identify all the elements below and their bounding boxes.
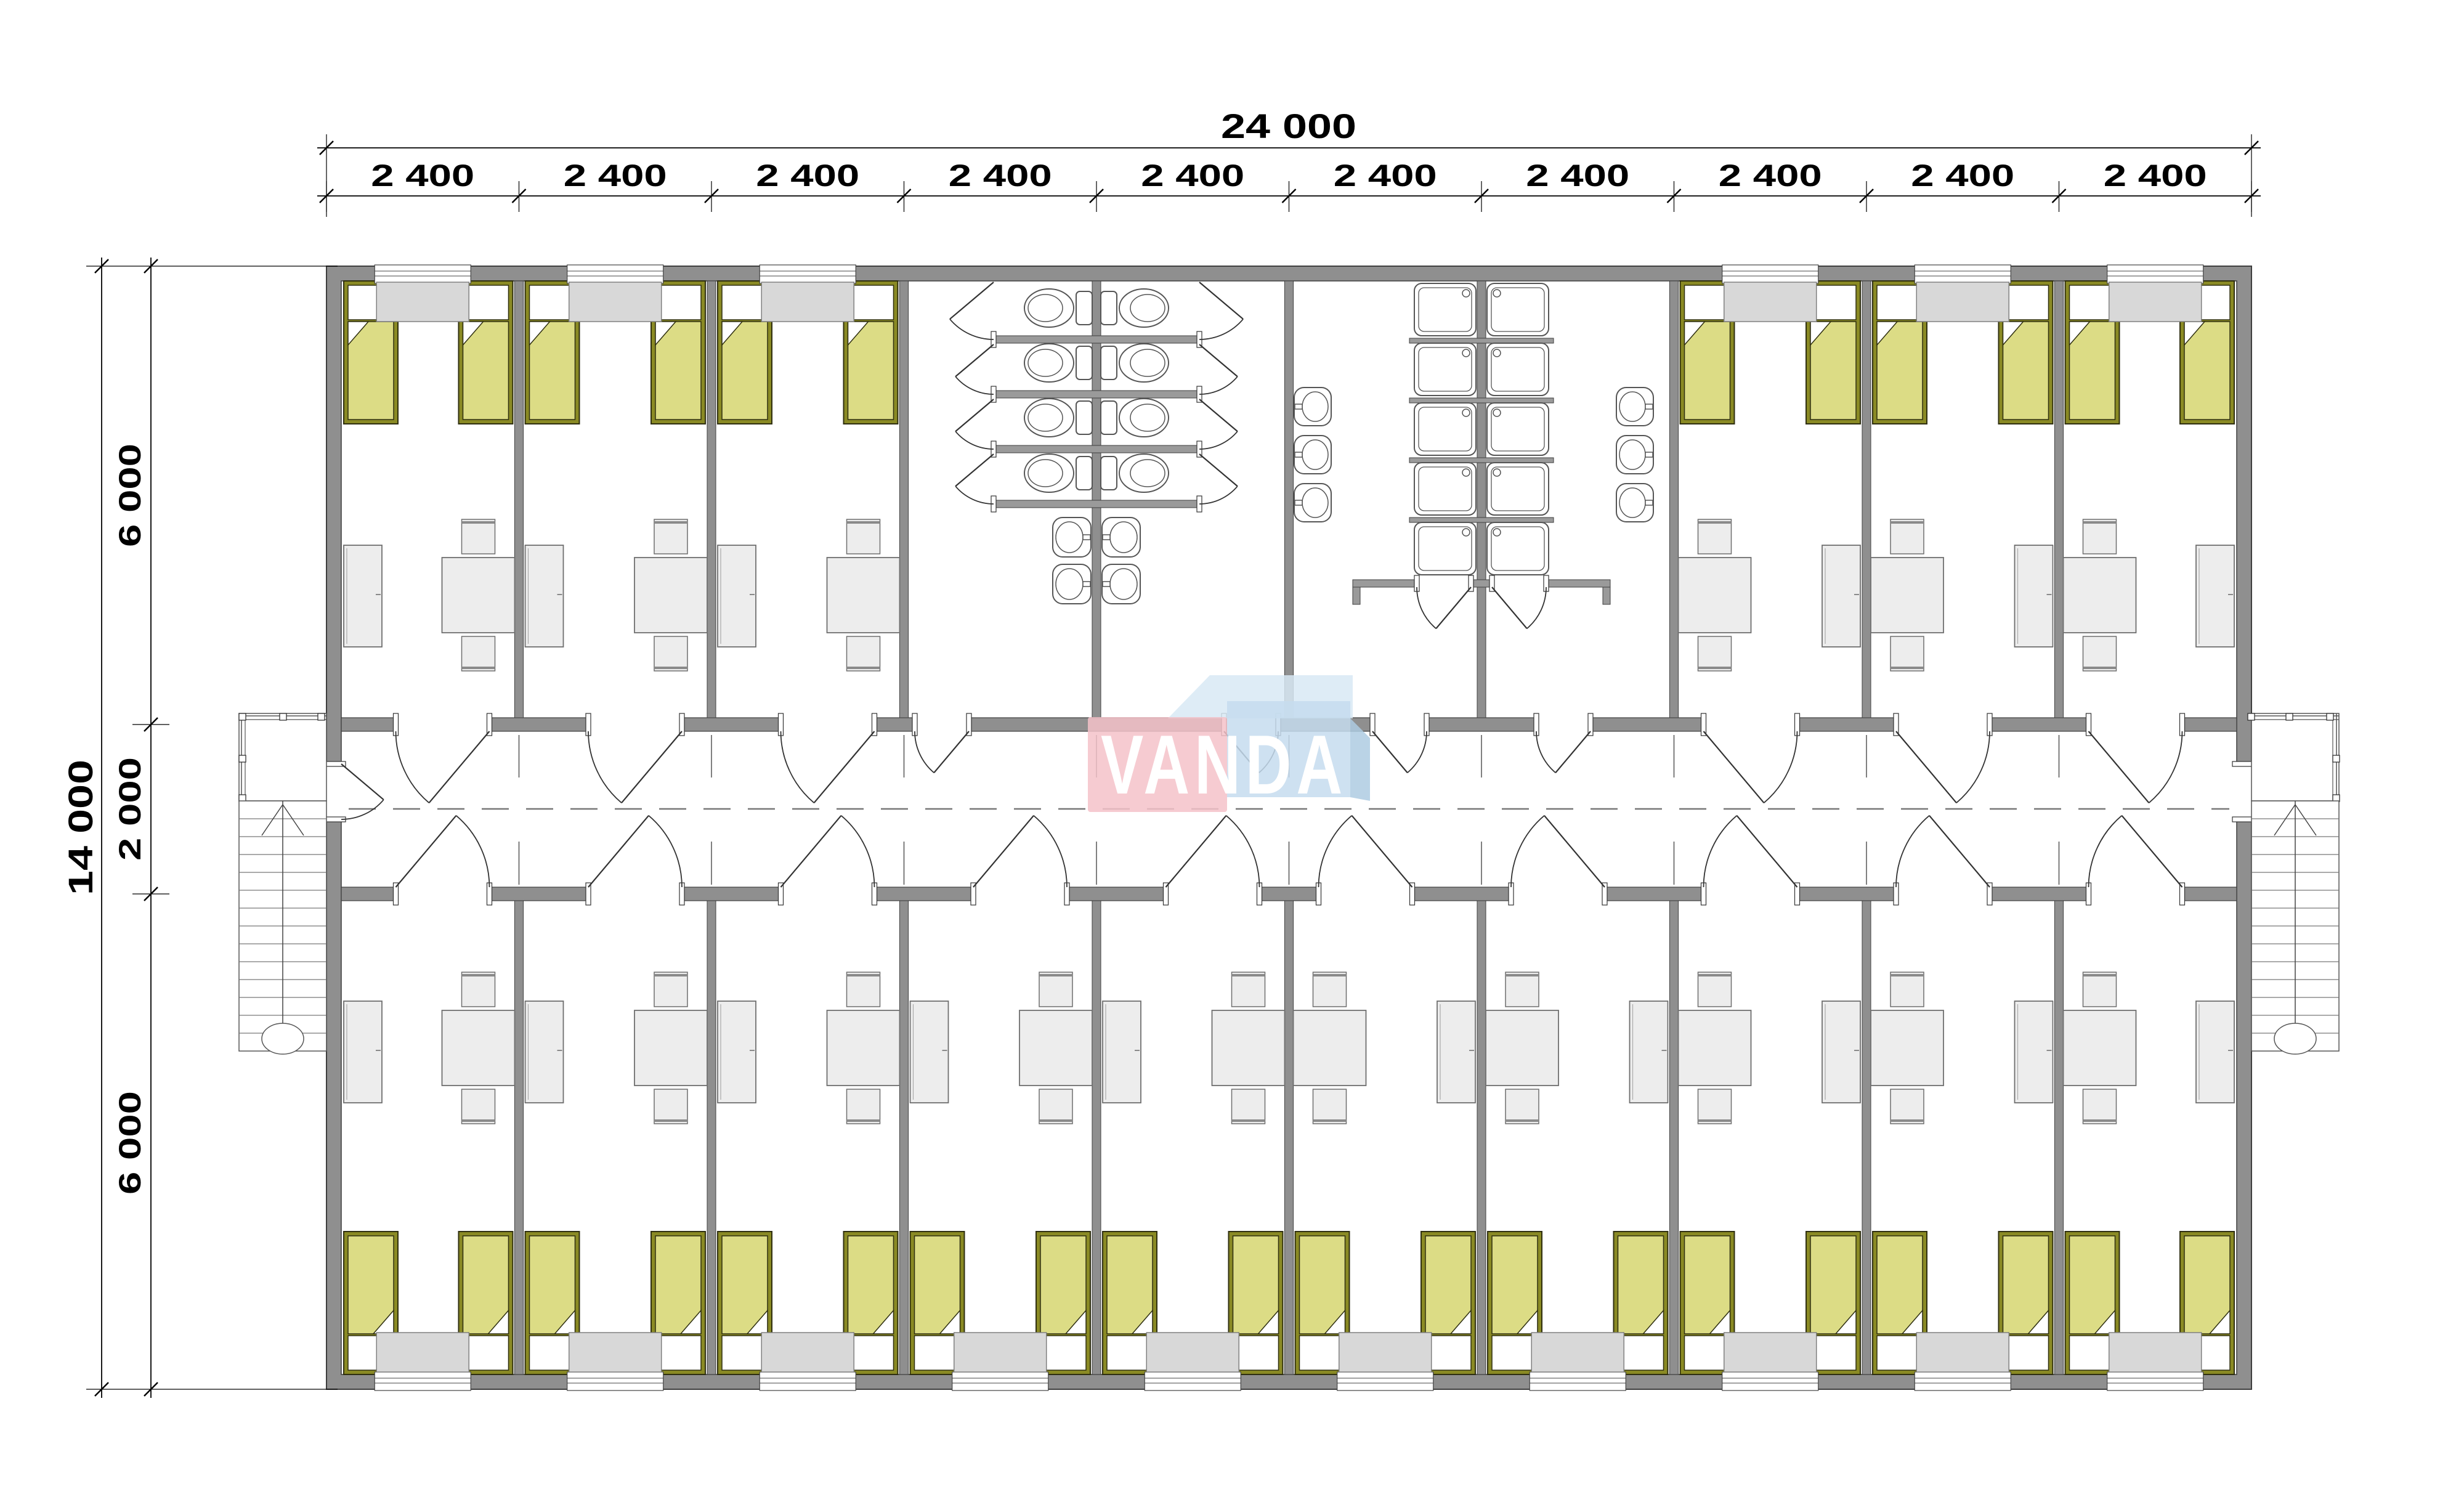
partition-wall-bottom	[1285, 901, 1294, 1374]
wardrobe	[1103, 1001, 1141, 1103]
stair-landing	[239, 713, 326, 801]
window-cabinet	[761, 1333, 854, 1372]
dining-table	[1294, 1010, 1366, 1086]
bed-pillow	[1685, 285, 1730, 320]
railing-post	[318, 713, 325, 720]
chair	[1039, 972, 1072, 1007]
window-cabinet	[954, 1333, 1047, 1372]
window-cabinet	[569, 1333, 662, 1372]
chair	[1232, 972, 1265, 1007]
bed-pillow	[463, 1336, 509, 1370]
bed-pillow	[463, 285, 509, 320]
window-cabinet	[569, 282, 662, 322]
chair	[2083, 972, 2117, 1007]
toilet-tank-icon	[1101, 457, 1117, 490]
window	[1915, 1372, 2011, 1390]
bed-pillow	[2070, 285, 2115, 320]
bed-pillow	[1040, 1336, 1086, 1370]
partition-wall-top	[1092, 281, 1101, 718]
wardrobe	[2015, 545, 2053, 647]
shower-drain	[1462, 409, 1470, 416]
chair	[847, 519, 880, 554]
shower-drain	[1493, 469, 1501, 476]
partition-wall-top	[1477, 281, 1486, 718]
chair	[1232, 1089, 1265, 1124]
door-opening	[781, 716, 875, 733]
bed-pillow	[848, 285, 894, 320]
dimension-label-module: 2 400	[949, 158, 1052, 193]
chair	[1698, 1089, 1732, 1124]
dimension-label-module: 2 400	[371, 158, 474, 193]
partition-wall-bottom	[707, 901, 716, 1374]
bed-pillow	[1233, 1336, 1279, 1370]
dining-table	[1212, 1010, 1285, 1086]
door-opening	[973, 886, 1067, 902]
window	[1722, 265, 1818, 283]
wc-stall-divider	[994, 336, 1199, 343]
chair	[654, 1089, 687, 1124]
chair	[1891, 636, 1924, 671]
bed-pillow	[530, 1336, 575, 1370]
chair	[1313, 972, 1347, 1007]
shower-drain	[1493, 529, 1501, 536]
door-opening	[1536, 716, 1591, 733]
door-opening	[1166, 886, 1260, 902]
bed-pillow	[1425, 1336, 1471, 1370]
shower-drain	[1493, 349, 1501, 357]
door-opening	[2235, 764, 2253, 819]
chair	[462, 519, 495, 554]
window-cabinet	[1531, 1333, 1624, 1372]
chair	[654, 972, 687, 1007]
wardrobe	[525, 545, 564, 647]
sink-tap	[1295, 500, 1302, 505]
toilet-tank-icon	[1101, 346, 1117, 380]
bed-pillow	[655, 285, 701, 320]
window	[1337, 1372, 1433, 1390]
door-opening	[1704, 886, 1797, 902]
shower-drain	[1493, 290, 1501, 297]
dining-table	[2064, 1010, 2136, 1086]
window	[1530, 1372, 1626, 1390]
dimension-label-lower-depth: 6 000	[113, 1091, 147, 1195]
shower-wall-stub	[1603, 587, 1610, 604]
shower-wall-stub	[1353, 587, 1360, 604]
bed-pillow	[1492, 1336, 1538, 1370]
shower-divider	[1409, 398, 1554, 403]
bed-pillow	[1810, 285, 1856, 320]
dimension-label-module: 2 400	[756, 158, 859, 193]
shower-drain	[1462, 529, 1470, 536]
door-opening	[396, 716, 490, 733]
chair	[2083, 1089, 2117, 1124]
window-cabinet	[376, 1333, 469, 1372]
window-cabinet	[1146, 1333, 1239, 1372]
toilet-tank-icon	[1076, 401, 1092, 434]
shower-drain	[1462, 349, 1470, 357]
partition-wall-bottom	[1862, 901, 1871, 1374]
wc-stall-divider	[994, 391, 1199, 398]
door-opening	[781, 886, 875, 902]
wardrobe	[344, 545, 382, 647]
partition-wall-bottom	[1670, 901, 1679, 1374]
bed-pillow	[1107, 1336, 1153, 1370]
shower-divider	[1409, 458, 1554, 463]
bed-pillow	[1685, 1336, 1730, 1370]
dining-table	[442, 558, 515, 633]
chair	[654, 519, 687, 554]
door-opening	[1896, 886, 1990, 902]
window-cabinet	[1724, 282, 1817, 322]
door-opening	[396, 886, 490, 902]
dining-table	[2064, 558, 2136, 633]
window	[567, 265, 663, 283]
dimension-label-module: 2 400	[1526, 158, 1629, 193]
bed-pillow	[915, 1336, 960, 1370]
door-opening	[588, 716, 682, 733]
bed-pillow	[1300, 1336, 1345, 1370]
railing-post	[2286, 713, 2293, 720]
sink-tap	[1645, 500, 1653, 505]
railing-post	[239, 755, 246, 762]
sink-tap	[1645, 452, 1653, 457]
window	[2107, 265, 2203, 283]
shower-front-wall	[1353, 580, 1610, 587]
partition-wall-top	[2055, 281, 2064, 718]
shower-drain	[1493, 409, 1501, 416]
toilet-tank-icon	[1076, 291, 1092, 325]
window	[375, 265, 471, 283]
chair	[654, 636, 687, 671]
floorplan-sheet: 24 0002 4002 4002 4002 4002 4002 4002 40…	[0, 0, 2464, 1502]
chair	[462, 636, 495, 671]
toilet-tank-icon	[1076, 457, 1092, 490]
chair	[1698, 636, 1732, 671]
door-opening	[2089, 886, 2182, 902]
chair	[2083, 519, 2117, 554]
dimension-label-upper-depth: 6 000	[113, 444, 147, 547]
shower-divider	[1409, 338, 1554, 343]
wardrobe	[718, 545, 756, 647]
dining-table	[1871, 558, 1943, 633]
chair	[2083, 636, 2117, 671]
window	[1722, 1372, 1818, 1390]
partition-wall-top	[1670, 281, 1679, 718]
window	[1915, 265, 2011, 283]
chair	[462, 972, 495, 1007]
dimension-label-module: 2 400	[2104, 158, 2207, 193]
dining-table	[634, 1010, 707, 1086]
dimension-label-module: 2 400	[1141, 158, 1244, 193]
sink-tap	[1645, 404, 1653, 409]
bed-pillow	[1877, 1336, 1923, 1370]
bed-pillow	[655, 1336, 701, 1370]
wardrobe	[910, 1001, 949, 1103]
chair	[1698, 519, 1732, 554]
wardrobe	[1822, 1001, 1860, 1103]
bed-pillow	[1877, 285, 1923, 320]
chair	[1891, 519, 1924, 554]
sink-tap	[1083, 535, 1090, 540]
wardrobe	[2196, 1001, 2234, 1103]
partition-wall-top	[1285, 281, 1294, 718]
window	[375, 1372, 471, 1390]
wardrobe	[2196, 545, 2234, 647]
dimension-label-module: 2 400	[1911, 158, 2014, 193]
bed-pillow	[722, 1336, 768, 1370]
sink-tap	[1103, 535, 1110, 540]
toilet-tank-icon	[1076, 346, 1092, 380]
sink-tap	[1103, 582, 1110, 587]
dimension-label-module: 2 400	[564, 158, 667, 193]
bed-pillow	[530, 285, 575, 320]
bed-pillow	[1810, 1336, 1856, 1370]
shower-divider	[1409, 518, 1554, 522]
chair	[1891, 972, 1924, 1007]
dining-table	[1871, 1010, 1943, 1086]
stair-newel-circle	[2274, 1023, 2316, 1054]
wc-stall-front-wall	[994, 500, 1199, 508]
window	[760, 1372, 856, 1390]
chair	[462, 1089, 495, 1124]
chair	[847, 972, 880, 1007]
stair-newel-circle	[262, 1023, 304, 1054]
door-opening	[1492, 578, 1546, 588]
chair	[1506, 1089, 1539, 1124]
wc-stall-divider	[994, 445, 1199, 453]
window-cabinet	[2109, 1333, 2202, 1372]
wardrobe	[1822, 545, 1860, 647]
dining-table	[827, 1010, 900, 1086]
dining-table	[442, 1010, 515, 1086]
railing-post	[239, 713, 246, 720]
window-cabinet	[376, 282, 469, 322]
wardrobe	[525, 1001, 564, 1103]
toilet-tank-icon	[1101, 401, 1117, 434]
stair-landing	[2251, 713, 2339, 801]
bed-pillow	[2070, 1336, 2115, 1370]
partition-wall-bottom	[1092, 901, 1101, 1374]
railing-post	[2248, 713, 2255, 720]
partition-wall-top	[515, 281, 524, 718]
partition-wall-top	[707, 281, 716, 718]
chair	[1506, 972, 1539, 1007]
chair	[1891, 1089, 1924, 1124]
floor-plan-canvas: 24 0002 4002 4002 4002 4002 4002 4002 40…	[0, 0, 2464, 1502]
door-opening	[1417, 578, 1471, 588]
partition-wall-bottom	[2055, 901, 2064, 1374]
window-cabinet	[2109, 282, 2202, 322]
chair	[847, 1089, 880, 1124]
dining-table	[1486, 1010, 1558, 1086]
bed-pillow	[848, 1336, 894, 1370]
window-cabinet	[1916, 1333, 2009, 1372]
dimension-label-corridor-depth: 2 000	[113, 757, 147, 861]
window	[760, 265, 856, 283]
door-opening	[1511, 886, 1605, 902]
dining-table	[1019, 1010, 1092, 1086]
toilet-tank-icon	[1101, 291, 1117, 325]
bed-pillow	[1618, 1336, 1664, 1370]
railing-post	[2327, 713, 2333, 720]
dining-table	[827, 558, 900, 633]
window	[2107, 1372, 2203, 1390]
door-opening	[2089, 716, 2182, 733]
bed-pillow	[2003, 285, 2049, 320]
wardrobe	[1437, 1001, 1475, 1103]
railing-post	[280, 713, 286, 720]
chair	[1313, 1089, 1347, 1124]
door-opening	[1319, 886, 1412, 902]
shower-drain	[1462, 290, 1470, 297]
partition-wall-top	[900, 281, 909, 718]
chair	[1698, 972, 1732, 1007]
wardrobe	[2015, 1001, 2053, 1103]
dimension-label-overall-width: 24 000	[1221, 107, 1356, 145]
wardrobe	[718, 1001, 756, 1103]
sink-tap	[1295, 404, 1302, 409]
door-opening	[1896, 716, 1990, 733]
dimension-label-module: 2 400	[1719, 158, 1822, 193]
dining-table	[1679, 558, 1751, 633]
bed-pillow	[722, 285, 768, 320]
chair	[847, 636, 880, 671]
wardrobe	[1630, 1001, 1668, 1103]
dimension-label-module: 2 400	[1334, 158, 1437, 193]
partition-wall-bottom	[1477, 901, 1486, 1374]
sink-tap	[1083, 582, 1090, 587]
dining-table	[634, 558, 707, 633]
partition-wall-bottom	[900, 901, 909, 1374]
railing-post	[2333, 755, 2340, 762]
window-cabinet	[1339, 1333, 1432, 1372]
chair	[1039, 1089, 1072, 1124]
door-opening	[325, 764, 342, 819]
wardrobe	[344, 1001, 382, 1103]
window	[1145, 1372, 1241, 1390]
window	[567, 1372, 663, 1390]
shower-drain	[1462, 469, 1470, 476]
dimension-label-overall-depth: 14 000	[61, 760, 100, 895]
dining-table	[1679, 1010, 1751, 1086]
sink-tap	[1295, 452, 1302, 457]
door-opening	[1704, 716, 1797, 733]
door-opening	[1372, 716, 1427, 733]
partition-wall-bottom	[515, 901, 524, 1374]
window-cabinet	[1724, 1333, 1817, 1372]
bed-pillow	[2003, 1336, 2049, 1370]
window-cabinet	[1916, 282, 2009, 322]
partition-wall-top	[1862, 281, 1871, 718]
logo-text: VANDA	[1101, 718, 1347, 811]
window	[952, 1372, 1048, 1390]
door-opening	[588, 886, 682, 902]
door-opening	[915, 716, 969, 733]
window-cabinet	[761, 282, 854, 322]
